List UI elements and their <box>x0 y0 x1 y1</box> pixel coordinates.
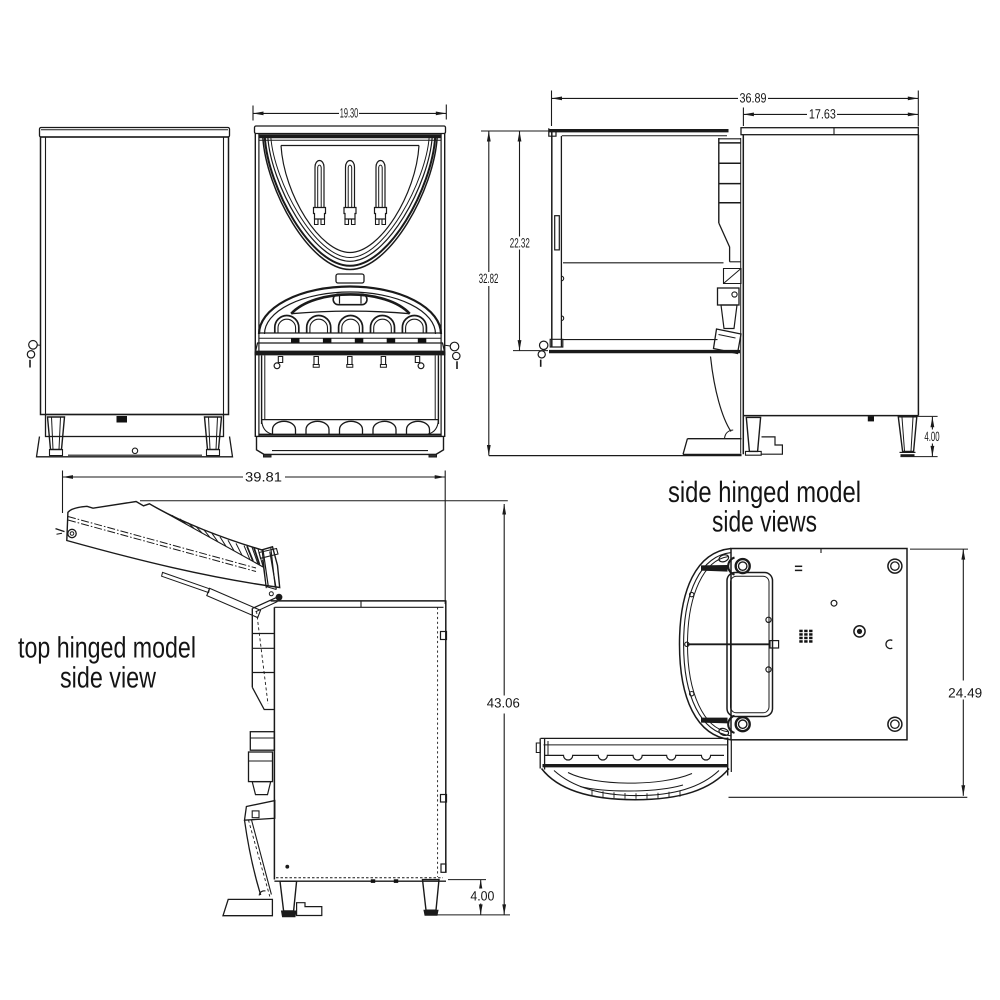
svg-text:4.00: 4.00 <box>924 429 939 444</box>
svg-text:39.81: 39.81 <box>245 469 282 484</box>
svg-text:19.30: 19.30 <box>340 106 359 121</box>
svg-text:top hinged model: top hinged model <box>18 632 196 665</box>
svg-text:17.63: 17.63 <box>809 107 836 122</box>
svg-text:side views: side views <box>712 506 817 539</box>
svg-text:43.06: 43.06 <box>487 696 520 711</box>
svg-text:36.89: 36.89 <box>740 91 767 106</box>
svg-text:22.32: 22.32 <box>510 235 530 250</box>
svg-text:32.82: 32.82 <box>479 271 499 286</box>
svg-text:24.49: 24.49 <box>948 686 982 701</box>
svg-text:side hinged model: side hinged model <box>668 476 861 509</box>
svg-text:4.00: 4.00 <box>470 889 494 904</box>
svg-text:side view: side view <box>60 662 157 695</box>
